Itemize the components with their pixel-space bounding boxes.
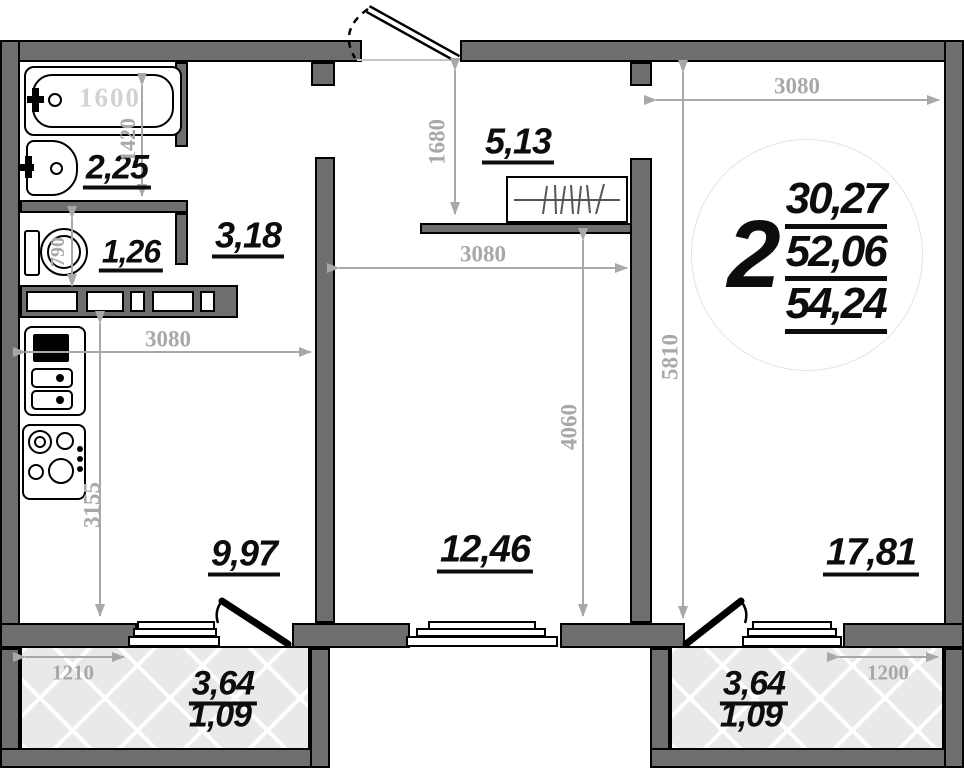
wall-balcony-right-south <box>650 748 964 768</box>
wall-balcony-left-east <box>310 648 330 768</box>
dim-wc-depth: 790 <box>48 237 68 267</box>
dim-living-width: 3080 <box>774 75 820 98</box>
wall-left <box>0 40 20 655</box>
wall-wc-right <box>175 213 188 265</box>
wall-bottom-seg3 <box>560 623 685 648</box>
dim-balcony-right-width: 1200 <box>867 663 909 684</box>
balcony-door-living <box>686 601 746 644</box>
kitchen-sink-bowl <box>31 368 73 388</box>
room-label-kitchen: 9,97 <box>208 536 280 577</box>
wardrobe <box>506 176 628 223</box>
dim-bedroom-width: 3080 <box>460 243 506 266</box>
wall-stub-hall-right <box>630 62 652 86</box>
toilet-tank <box>24 230 40 276</box>
stove-burner-icon <box>28 464 44 480</box>
room-label-bedroom: 12,46 <box>437 531 533 574</box>
wall-balcony-right-east <box>944 648 964 768</box>
balcony-left-reduced-area: 1,09 <box>186 699 254 734</box>
bathtub-drain-icon <box>48 93 62 107</box>
washbasin-drain-icon <box>50 162 63 175</box>
wall-balcony-left-south <box>0 748 330 768</box>
stove-knob-icon <box>77 466 83 472</box>
room-label-wc: 1,26 <box>99 236 163 273</box>
stove-burner-icon <box>56 432 74 450</box>
kitchen-sink-drain-icon <box>56 396 64 404</box>
wall-right <box>944 40 964 655</box>
room-label-living-room: 17,81 <box>823 534 919 577</box>
room-label-entry-hall: 5,13 <box>482 124 554 165</box>
dim-kitchen-width: 3080 <box>145 328 191 351</box>
balcony-door-kitchen <box>217 601 288 644</box>
room-label-hallway: 3,18 <box>212 218 284 259</box>
balcony-right-reduced-area: 1,09 <box>717 699 785 734</box>
kitchen-sink-bowl <box>31 390 73 410</box>
rooms-count: 2 <box>727 207 780 303</box>
cabinet-unit <box>200 291 215 312</box>
wall-stub-hall-left <box>311 62 335 86</box>
apartment-area-value: 52,06 <box>785 229 887 282</box>
bathtub-faucet-icon <box>32 88 39 112</box>
dim-kitchen-depth: 3155 <box>81 482 104 528</box>
wall-hall-bottom <box>420 223 652 234</box>
wall-bottom-seg4 <box>843 623 964 648</box>
apartment-summary-badge: 2 30,27 52,06 54,24 <box>692 140 922 370</box>
dim-balcony-left-width: 1210 <box>52 663 94 684</box>
stove-knob-icon <box>77 446 83 452</box>
cabinet-unit <box>130 291 145 312</box>
washbasin-tap-icon <box>25 156 32 178</box>
cabinet-unit <box>26 291 78 312</box>
cabinet-unit <box>152 291 194 312</box>
stove-burner-icon <box>48 458 74 484</box>
dim-bathroom-width: 1420 <box>117 118 139 162</box>
wall-bathroom-bottom <box>20 200 188 213</box>
areas-column: 30,27 52,06 54,24 <box>785 176 887 334</box>
dim-living-depth: 5810 <box>659 334 682 380</box>
kitchen-sink-drain-icon <box>56 374 64 382</box>
wall-top-left <box>0 40 362 62</box>
wall-kitchen-bedroom <box>315 157 335 623</box>
kitchen-sink-drainer <box>33 334 69 362</box>
living-area-value: 30,27 <box>785 176 887 229</box>
dim-bedroom-depth: 4060 <box>558 404 581 450</box>
wall-bottom-seg2 <box>292 623 410 648</box>
floor-plan: 1600 2 30,27 52, <box>0 0 964 768</box>
stove-knob-icon <box>77 456 83 462</box>
wall-bottom-seg1 <box>0 623 137 648</box>
cabinet-unit <box>86 291 124 312</box>
tub-length-dim: 1600 <box>79 83 141 114</box>
total-area-value: 54,24 <box>785 281 887 334</box>
stove-burner-icon <box>34 436 46 448</box>
entry-door <box>349 9 460 60</box>
dim-entry-hall-depth: 1680 <box>426 119 449 165</box>
wall-bedroom-living <box>630 158 652 623</box>
wall-top-right <box>460 40 964 62</box>
